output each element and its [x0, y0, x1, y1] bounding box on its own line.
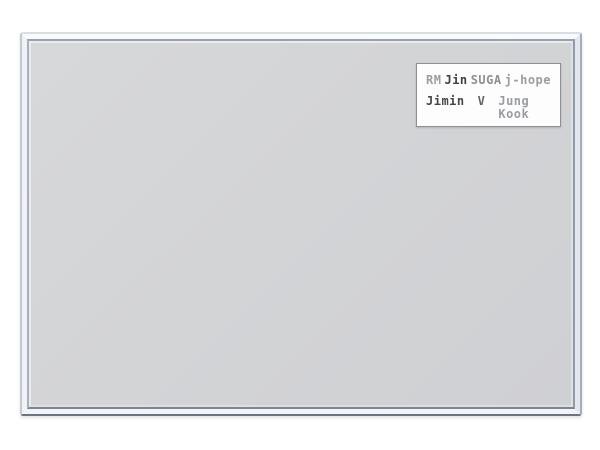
sticker-row-1: RM Jin SUGA j-hope — [426, 74, 551, 87]
member-name-sticker: RM Jin SUGA j-hope Jimin V Jung Kook — [416, 63, 561, 127]
board-frame-inner-bevel: RM Jin SUGA j-hope Jimin V Jung Kook — [29, 41, 573, 407]
sticker-row-2: Jimin V Jung Kook — [426, 95, 551, 121]
product-photo: RM Jin SUGA j-hope Jimin V Jung Kook — [0, 0, 600, 450]
member-name-jungkook: Jung Kook — [498, 95, 534, 121]
board-surface: RM Jin SUGA j-hope Jimin V Jung Kook — [31, 43, 571, 405]
member-name-jhope: j-hope — [505, 74, 551, 87]
member-name-jin: Jin — [444, 74, 467, 87]
member-name-rm: RM — [426, 74, 441, 87]
member-name-suga: SUGA — [471, 74, 502, 87]
member-name-v: V — [478, 95, 486, 108]
board-frame-groove: RM Jin SUGA j-hope Jimin V Jung Kook — [27, 39, 575, 409]
member-name-jimin: Jimin — [426, 95, 465, 108]
board-frame-highlight: RM Jin SUGA j-hope Jimin V Jung Kook — [22, 34, 580, 414]
board-frame: RM Jin SUGA j-hope Jimin V Jung Kook — [20, 32, 582, 416]
